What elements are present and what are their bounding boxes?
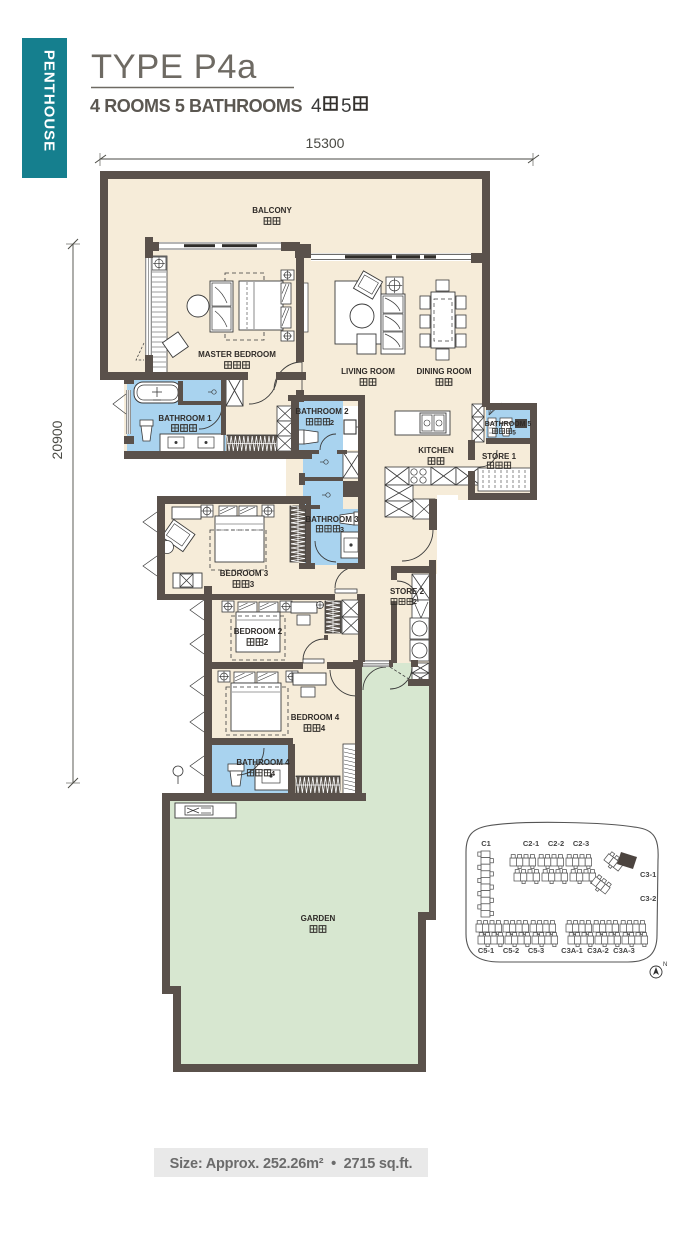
svg-text:BATHROOM 2: BATHROOM 2 bbox=[295, 407, 349, 416]
svg-text:MASTER BEDROOM: MASTER BEDROOM bbox=[198, 350, 276, 359]
svg-text:3: 3 bbox=[250, 580, 255, 589]
svg-text:2: 2 bbox=[330, 418, 334, 427]
svg-text:C3A-1: C3A-1 bbox=[561, 946, 583, 955]
svg-text:C3A-3: C3A-3 bbox=[613, 946, 635, 955]
svg-text:C5-1: C5-1 bbox=[478, 946, 494, 955]
svg-text:4: 4 bbox=[321, 724, 326, 733]
svg-text:C5-3: C5-3 bbox=[528, 946, 544, 955]
svg-text:BATHROOM 1: BATHROOM 1 bbox=[158, 414, 212, 423]
svg-text:C2-2: C2-2 bbox=[548, 839, 564, 848]
svg-text:TYPE P4a: TYPE P4a bbox=[91, 48, 257, 86]
svg-text:C3-1: C3-1 bbox=[640, 870, 656, 879]
svg-text:BEDROOM 3: BEDROOM 3 bbox=[220, 569, 269, 578]
svg-text:20900: 20900 bbox=[49, 420, 65, 459]
svg-text:BATHROOM 4: BATHROOM 4 bbox=[236, 758, 290, 767]
svg-text:STORE 1: STORE 1 bbox=[482, 452, 517, 461]
svg-text:4: 4 bbox=[311, 96, 322, 117]
svg-text:C2-3: C2-3 bbox=[573, 839, 589, 848]
svg-text:15300: 15300 bbox=[306, 135, 345, 151]
svg-text:STORE 2: STORE 2 bbox=[390, 587, 425, 596]
svg-text:BATHROOM 5: BATHROOM 5 bbox=[485, 421, 532, 428]
svg-text:BALCONY: BALCONY bbox=[252, 206, 292, 215]
svg-text:N: N bbox=[663, 962, 667, 968]
svg-text:C5-2: C5-2 bbox=[503, 946, 519, 955]
svg-text:5: 5 bbox=[341, 96, 352, 117]
svg-text:2: 2 bbox=[264, 638, 269, 647]
svg-text:LIVING ROOM: LIVING ROOM bbox=[341, 367, 395, 376]
svg-text:Size: Approx. 252.26m² • 271: Size: Approx. 252.26m² • 2715 sq.ft. bbox=[170, 1156, 413, 1172]
svg-text:2: 2 bbox=[413, 599, 417, 606]
svg-text:GARDEN: GARDEN bbox=[301, 914, 336, 923]
svg-text:C3A-2: C3A-2 bbox=[587, 946, 609, 955]
svg-text:C1: C1 bbox=[481, 839, 491, 848]
svg-text:PENTHOUSE: PENTHOUSE bbox=[41, 50, 58, 152]
svg-text:BEDROOM 4: BEDROOM 4 bbox=[291, 713, 340, 722]
svg-text:DINING ROOM: DINING ROOM bbox=[416, 367, 471, 376]
svg-text:C2-1: C2-1 bbox=[523, 839, 539, 848]
svg-text:3: 3 bbox=[340, 525, 344, 534]
svg-text:5: 5 bbox=[512, 430, 516, 437]
svg-text:KITCHEN: KITCHEN bbox=[418, 446, 454, 455]
svg-text:BEDROOM 2: BEDROOM 2 bbox=[234, 627, 283, 636]
svg-text:4 ROOMS 5 BATHROOMS: 4 ROOMS 5 BATHROOMS bbox=[90, 96, 302, 116]
svg-text:C3-2: C3-2 bbox=[640, 894, 656, 903]
svg-text:BATHROOM 3: BATHROOM 3 bbox=[305, 515, 359, 524]
